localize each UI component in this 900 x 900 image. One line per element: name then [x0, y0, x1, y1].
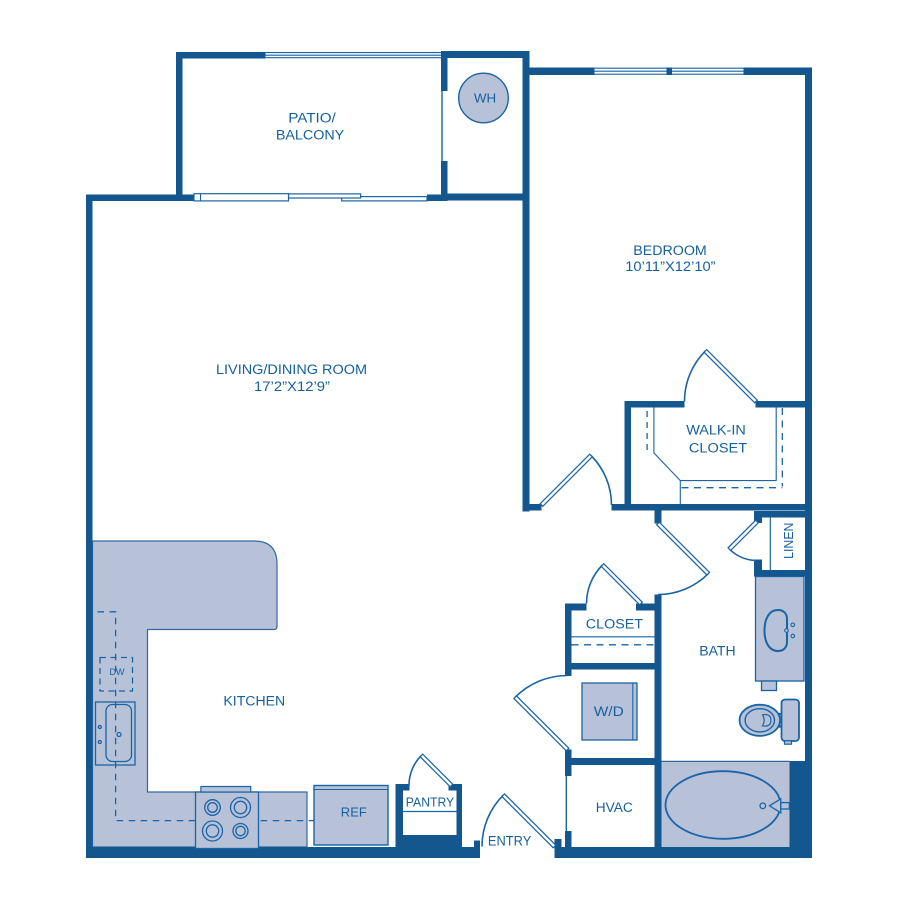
svg-text:REF: REF [341, 806, 367, 820]
svg-text:BATH: BATH [699, 643, 735, 658]
svg-text:KITCHEN: KITCHEN [223, 694, 285, 709]
svg-text:ENTRY: ENTRY [488, 833, 531, 848]
svg-text:LIVING/DINING ROOM: LIVING/DINING ROOM [216, 362, 367, 377]
svg-text:W/D: W/D [594, 704, 624, 719]
svg-text:WALK-IN: WALK-IN [686, 423, 746, 438]
svg-text:BALCONY: BALCONY [276, 128, 344, 143]
svg-text:HVAC: HVAC [596, 800, 633, 815]
svg-text:CLOSET: CLOSET [689, 441, 747, 456]
svg-text:10’11”X12’10”: 10’11”X12’10” [625, 259, 715, 274]
svg-text:PATIO/: PATIO/ [288, 110, 336, 125]
svg-text:CLOSET: CLOSET [586, 616, 643, 631]
svg-text:17’2”X12’9”: 17’2”X12’9” [254, 379, 330, 394]
svg-text:DW: DW [110, 667, 125, 677]
svg-text:WH: WH [474, 91, 496, 106]
svg-text:BEDROOM: BEDROOM [633, 243, 707, 258]
svg-text:LINEN: LINEN [781, 523, 796, 559]
svg-text:PANTRY: PANTRY [406, 795, 455, 809]
